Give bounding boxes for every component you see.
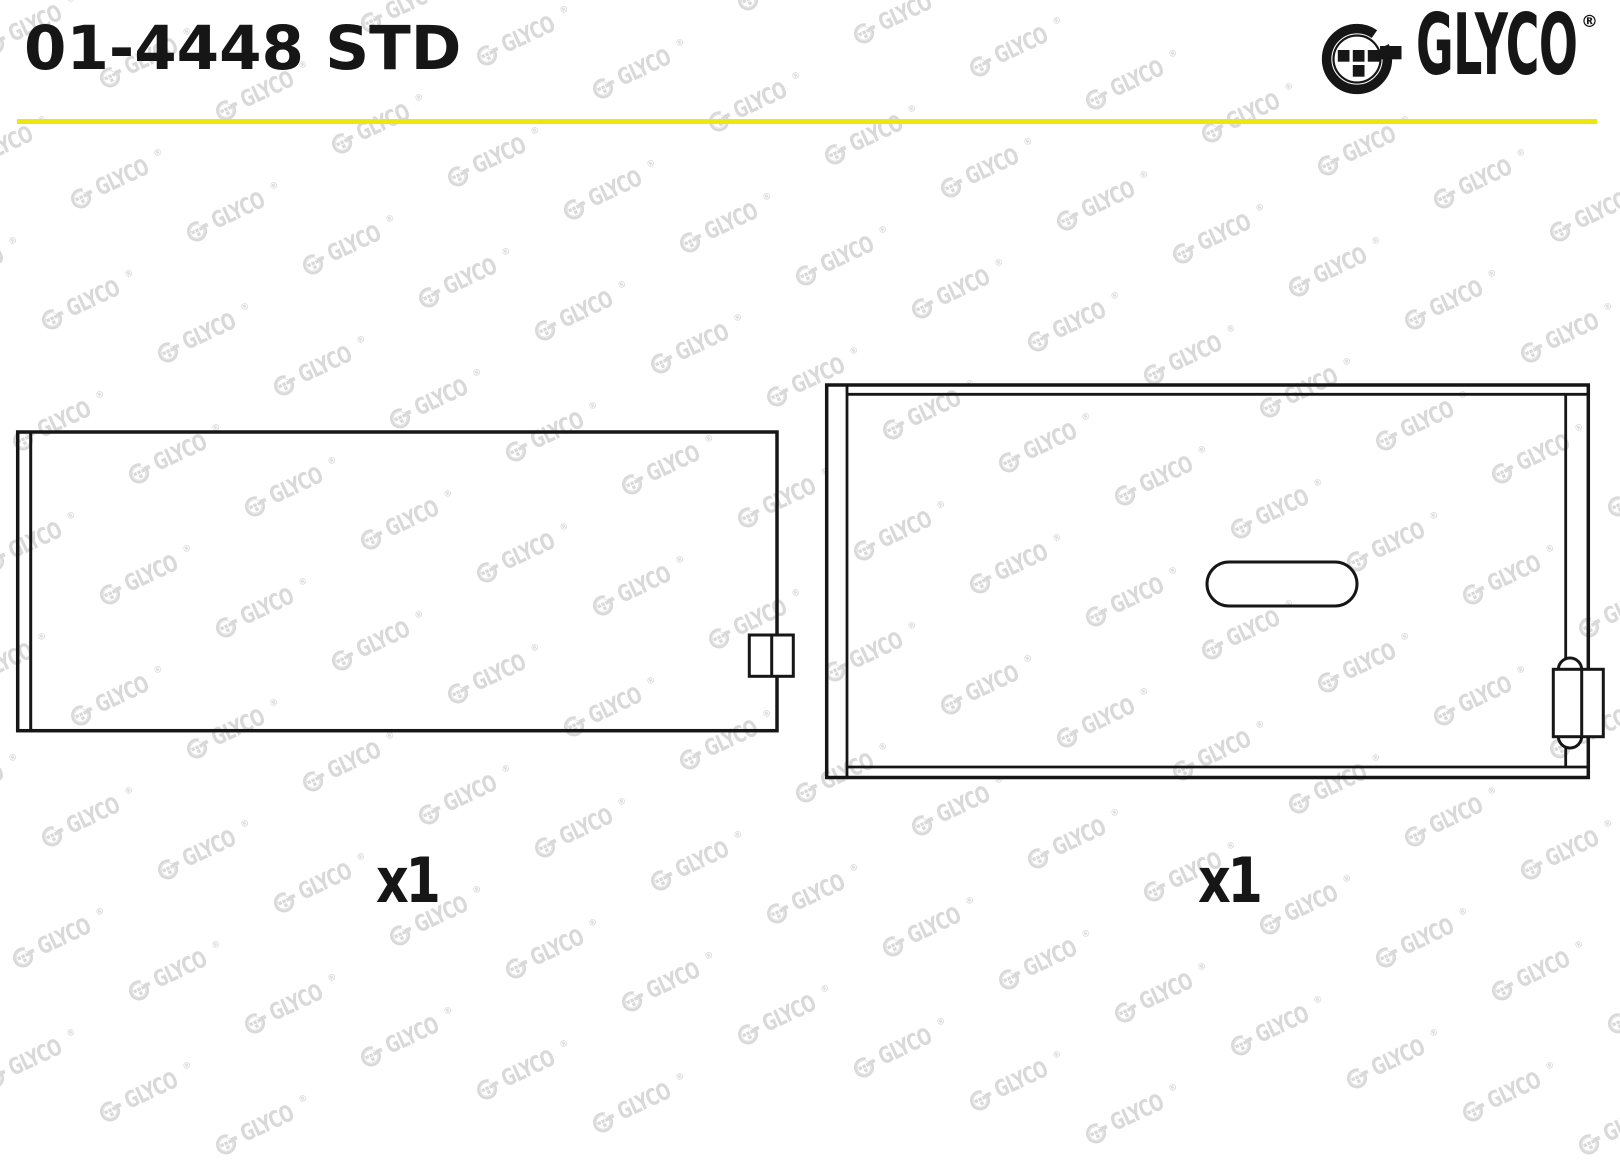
watermark-g-icon [1487, 974, 1518, 1004]
watermark: GLYCO® [0, 1021, 98, 1093]
watermark: GLYCO® [0, 229, 40, 301]
watermark-g-icon [1168, 237, 1199, 267]
yellow-divider-rule [17, 119, 1597, 124]
watermark-g-icon [501, 952, 532, 982]
watermark: GLYCO® [153, 295, 272, 367]
watermark-g-icon [240, 0, 271, 3]
watermark: GLYCO® [414, 240, 533, 312]
watermark-g-icon [472, 1073, 503, 1103]
watermark: GLYCO® [1226, 988, 1345, 1060]
watermark: GLYCO® [733, 0, 852, 15]
watermark-g-icon [559, 193, 590, 223]
watermark: GLYCO® [1516, 295, 1620, 367]
watermark-g-icon [1052, 204, 1083, 234]
watermark-g-icon [965, 1084, 996, 1114]
watermark-g-icon [530, 314, 561, 344]
watermark-g-icon [1516, 336, 1547, 366]
watermark: GLYCO® [182, 174, 301, 246]
watermark-g-icon [1400, 303, 1431, 333]
watermark-g-icon [8, 941, 39, 971]
registered-trademark-symbol: ® [1581, 14, 1598, 31]
watermark-g-icon [1023, 325, 1054, 355]
watermark: GLYCO® [240, 966, 359, 1038]
watermark-g-icon [327, 127, 358, 157]
watermark-g-icon [1516, 853, 1547, 883]
watermark: GLYCO® [0, 350, 11, 422]
watermark: GLYCO® [1168, 196, 1287, 268]
watermark: GLYCO® [878, 889, 997, 961]
bearing-outline [18, 432, 777, 731]
watermark: GLYCO® [1574, 1087, 1620, 1159]
watermark: GLYCO® [762, 856, 881, 928]
watermark: GLYCO® [965, 1043, 1084, 1115]
watermark: GLYCO® [1400, 262, 1519, 334]
watermark-g-icon [675, 743, 706, 773]
watermark-g-icon [1023, 842, 1054, 872]
watermark: GLYCO® [1429, 141, 1548, 213]
watermark-g-icon [733, 0, 764, 14]
watermark-g-icon [1429, 182, 1460, 212]
bearing-drawing-right [824, 382, 1608, 782]
watermark: GLYCO® [269, 845, 388, 917]
watermark-g-icon [95, 1095, 126, 1125]
watermark: GLYCO® [37, 262, 156, 334]
watermark: GLYCO® [298, 207, 417, 279]
watermark: GLYCO® [849, 0, 968, 48]
watermark: GLYCO® [704, 64, 823, 136]
watermark-g-icon [1458, 1095, 1489, 1125]
watermark: GLYCO® [1400, 779, 1519, 851]
watermark: GLYCO® [385, 361, 504, 433]
watermark-g-icon [588, 72, 619, 102]
watermark: GLYCO® [617, 944, 736, 1016]
watermark-g-icon [1081, 1117, 1112, 1147]
watermark-g-icon [240, 1007, 271, 1037]
watermark: GLYCO® [1255, 867, 1374, 939]
watermark-g-icon [269, 886, 300, 916]
watermark-g-icon [588, 1106, 619, 1136]
watermark: GLYCO® [1110, 955, 1229, 1027]
watermark: GLYCO® [1342, 1021, 1461, 1093]
watermark-g-icon [414, 798, 445, 828]
watermark: GLYCO® [211, 1087, 330, 1159]
watermark-g-icon [414, 281, 445, 311]
watermark-g-icon [849, 17, 880, 47]
watermark: GLYCO® [501, 911, 620, 983]
watermark-g-icon [443, 160, 474, 190]
watermark-g-icon [1313, 149, 1344, 179]
watermark: GLYCO® [1081, 42, 1200, 114]
watermark-g-icon [791, 776, 822, 806]
locking-lug [1553, 669, 1603, 736]
watermark-g-icon [37, 303, 68, 333]
watermark: GLYCO® [791, 218, 910, 290]
watermark-g-icon [1574, 1128, 1605, 1158]
watermark: GLYCO® [95, 1054, 214, 1126]
watermark: GLYCO® [820, 97, 939, 169]
watermark-g-icon [1081, 83, 1112, 113]
glyco-logo-wordmark: GLYCO [1416, 3, 1577, 88]
watermark-g-icon [298, 765, 329, 795]
watermark-g-icon [211, 1128, 242, 1158]
glyco-logo: GLYCO ® [1319, 0, 1619, 110]
watermark-g-icon [124, 974, 155, 1004]
watermark: GLYCO® [559, 152, 678, 224]
watermark: GLYCO® [1487, 933, 1606, 1005]
watermark: GLYCO® [1081, 1076, 1200, 1148]
watermark-g-icon [878, 930, 909, 960]
watermark-g-icon [675, 226, 706, 256]
watermark-g-icon [762, 897, 793, 927]
watermark-g-icon [1603, 1007, 1620, 1037]
watermark: GLYCO® [443, 119, 562, 191]
part-number: 01-4448 STD [24, 18, 461, 79]
watermark: GLYCO® [0, 867, 11, 939]
watermark: GLYCO® [588, 1065, 707, 1137]
watermark-g-icon [37, 820, 68, 850]
watermark-g-icon [153, 336, 184, 366]
glyco-g-emblem-icon [1319, 21, 1403, 97]
watermark-g-icon [269, 369, 300, 399]
watermark: GLYCO® [1603, 966, 1620, 1038]
watermark-g-icon [762, 380, 793, 410]
watermark: GLYCO® [1023, 801, 1142, 873]
watermark: GLYCO® [646, 306, 765, 378]
watermark: GLYCO® [153, 812, 272, 884]
watermark: GLYCO® [675, 185, 794, 257]
watermark-g-icon [1400, 820, 1431, 850]
watermark: GLYCO® [733, 977, 852, 1049]
watermark: GLYCO® [907, 251, 1026, 323]
watermark-g-icon [646, 864, 677, 894]
watermark: GLYCO® [37, 779, 156, 851]
bearing-drawing-left [14, 428, 798, 734]
watermark-g-icon [907, 809, 938, 839]
watermark: GLYCO® [1023, 284, 1142, 356]
watermark: GLYCO® [472, 0, 591, 70]
watermark-g-icon [1226, 1029, 1257, 1059]
watermark-g-icon [1284, 270, 1315, 300]
watermark: GLYCO® [124, 933, 243, 1005]
watermark-g-icon [356, 1040, 387, 1070]
quantity-label-left: x1 [376, 850, 438, 912]
watermark: GLYCO® [356, 999, 475, 1071]
watermark: GLYCO® [1139, 317, 1258, 389]
watermark-g-icon [1139, 875, 1170, 905]
watermark-g-icon [1342, 1062, 1373, 1092]
watermark-g-icon [994, 963, 1025, 993]
watermark-g-icon [733, 1018, 764, 1048]
watermark: GLYCO® [936, 130, 1055, 202]
watermark-g-icon [1545, 215, 1576, 245]
watermark: GLYCO® [1516, 812, 1620, 884]
watermark: GLYCO® [66, 141, 185, 213]
watermark: GLYCO® [269, 328, 388, 400]
watermark: GLYCO® [414, 757, 533, 829]
watermark-g-icon [849, 1051, 880, 1081]
watermark: GLYCO® [530, 790, 649, 862]
watermark-g-icon [965, 50, 996, 80]
watermark: GLYCO® [965, 9, 1084, 81]
watermark-g-icon [907, 292, 938, 322]
watermark-g-icon [1371, 941, 1402, 971]
watermark: GLYCO® [849, 1010, 968, 1082]
watermark-g-icon [646, 347, 677, 377]
watermark: GLYCO® [1197, 75, 1316, 147]
watermark-g-icon [182, 215, 213, 245]
watermark: GLYCO® [1371, 900, 1490, 972]
watermark: GLYCO® [1458, 1054, 1577, 1126]
quantity-label-right: x1 [1198, 850, 1260, 912]
watermark: GLYCO® [588, 31, 707, 103]
watermark-g-icon [472, 39, 503, 69]
watermark-g-icon [791, 259, 822, 289]
oil-slot [1207, 562, 1357, 606]
watermark: GLYCO® [240, 0, 359, 4]
watermark: GLYCO® [1284, 229, 1403, 301]
watermark-g-icon [1255, 908, 1286, 938]
watermark: GLYCO® [530, 273, 649, 345]
watermark-g-icon [298, 248, 329, 278]
watermark-g-icon [385, 919, 416, 949]
watermark-g-icon [1110, 996, 1141, 1026]
watermark: GLYCO® [1545, 174, 1620, 246]
watermark-g-icon [530, 831, 561, 861]
watermark: GLYCO® [8, 900, 127, 972]
watermark: GLYCO® [994, 922, 1113, 994]
watermark: GLYCO® [0, 746, 40, 818]
watermark-g-icon [153, 853, 184, 883]
watermark: GLYCO® [298, 724, 417, 796]
watermark: GLYCO® [1052, 163, 1171, 235]
watermark-g-icon [617, 985, 648, 1015]
watermark-g-icon [936, 171, 967, 201]
watermark-g-icon [182, 732, 213, 762]
watermark-g-icon [820, 138, 851, 168]
watermark-g-icon [66, 182, 97, 212]
watermark-g-icon [1284, 787, 1315, 817]
watermark: GLYCO® [472, 1032, 591, 1104]
watermark: GLYCO® [646, 823, 765, 895]
